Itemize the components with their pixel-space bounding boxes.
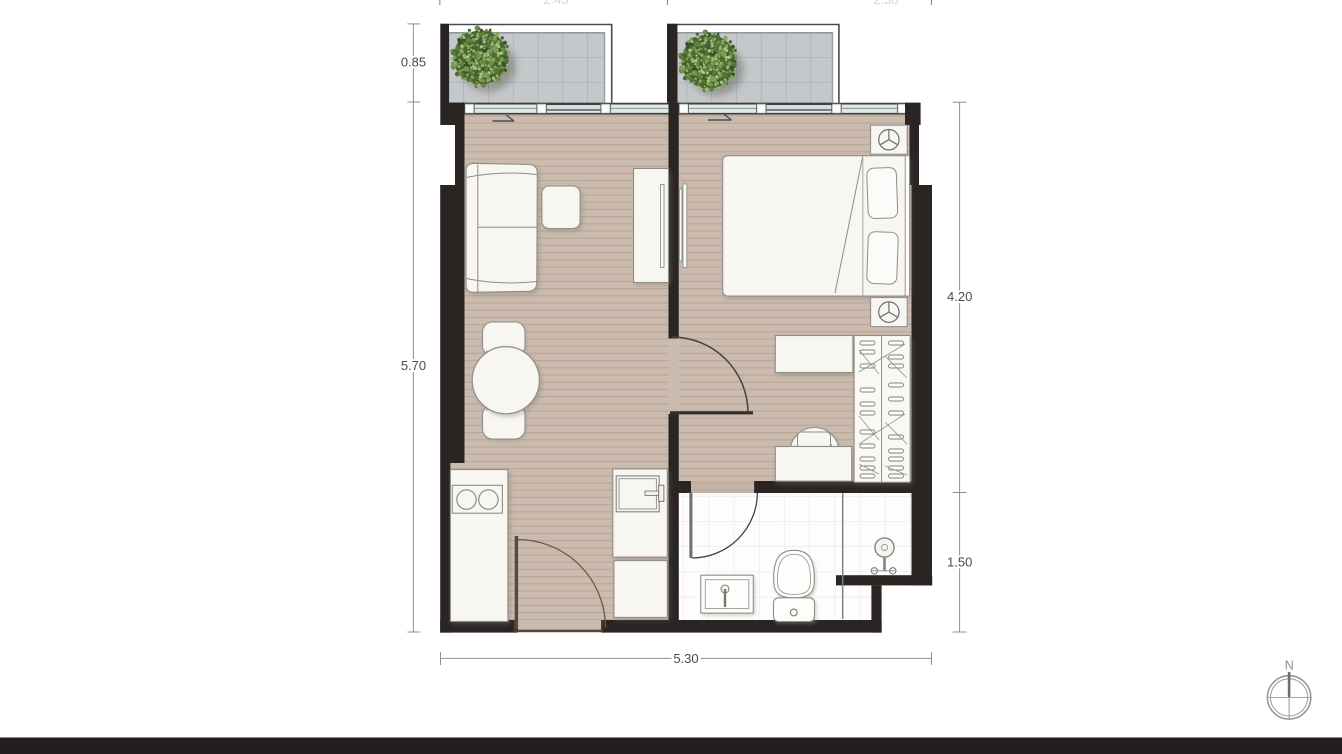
svg-text:N: N (1285, 659, 1294, 673)
svg-text:1.50: 1.50 (947, 555, 972, 570)
svg-text:2.45: 2.45 (543, 0, 568, 7)
svg-text:5.30: 5.30 (673, 651, 698, 666)
svg-text:5.70: 5.70 (401, 358, 426, 373)
svg-text:2.30: 2.30 (873, 0, 898, 7)
svg-text:4.20: 4.20 (947, 289, 972, 304)
svg-text:0.85: 0.85 (401, 55, 426, 70)
